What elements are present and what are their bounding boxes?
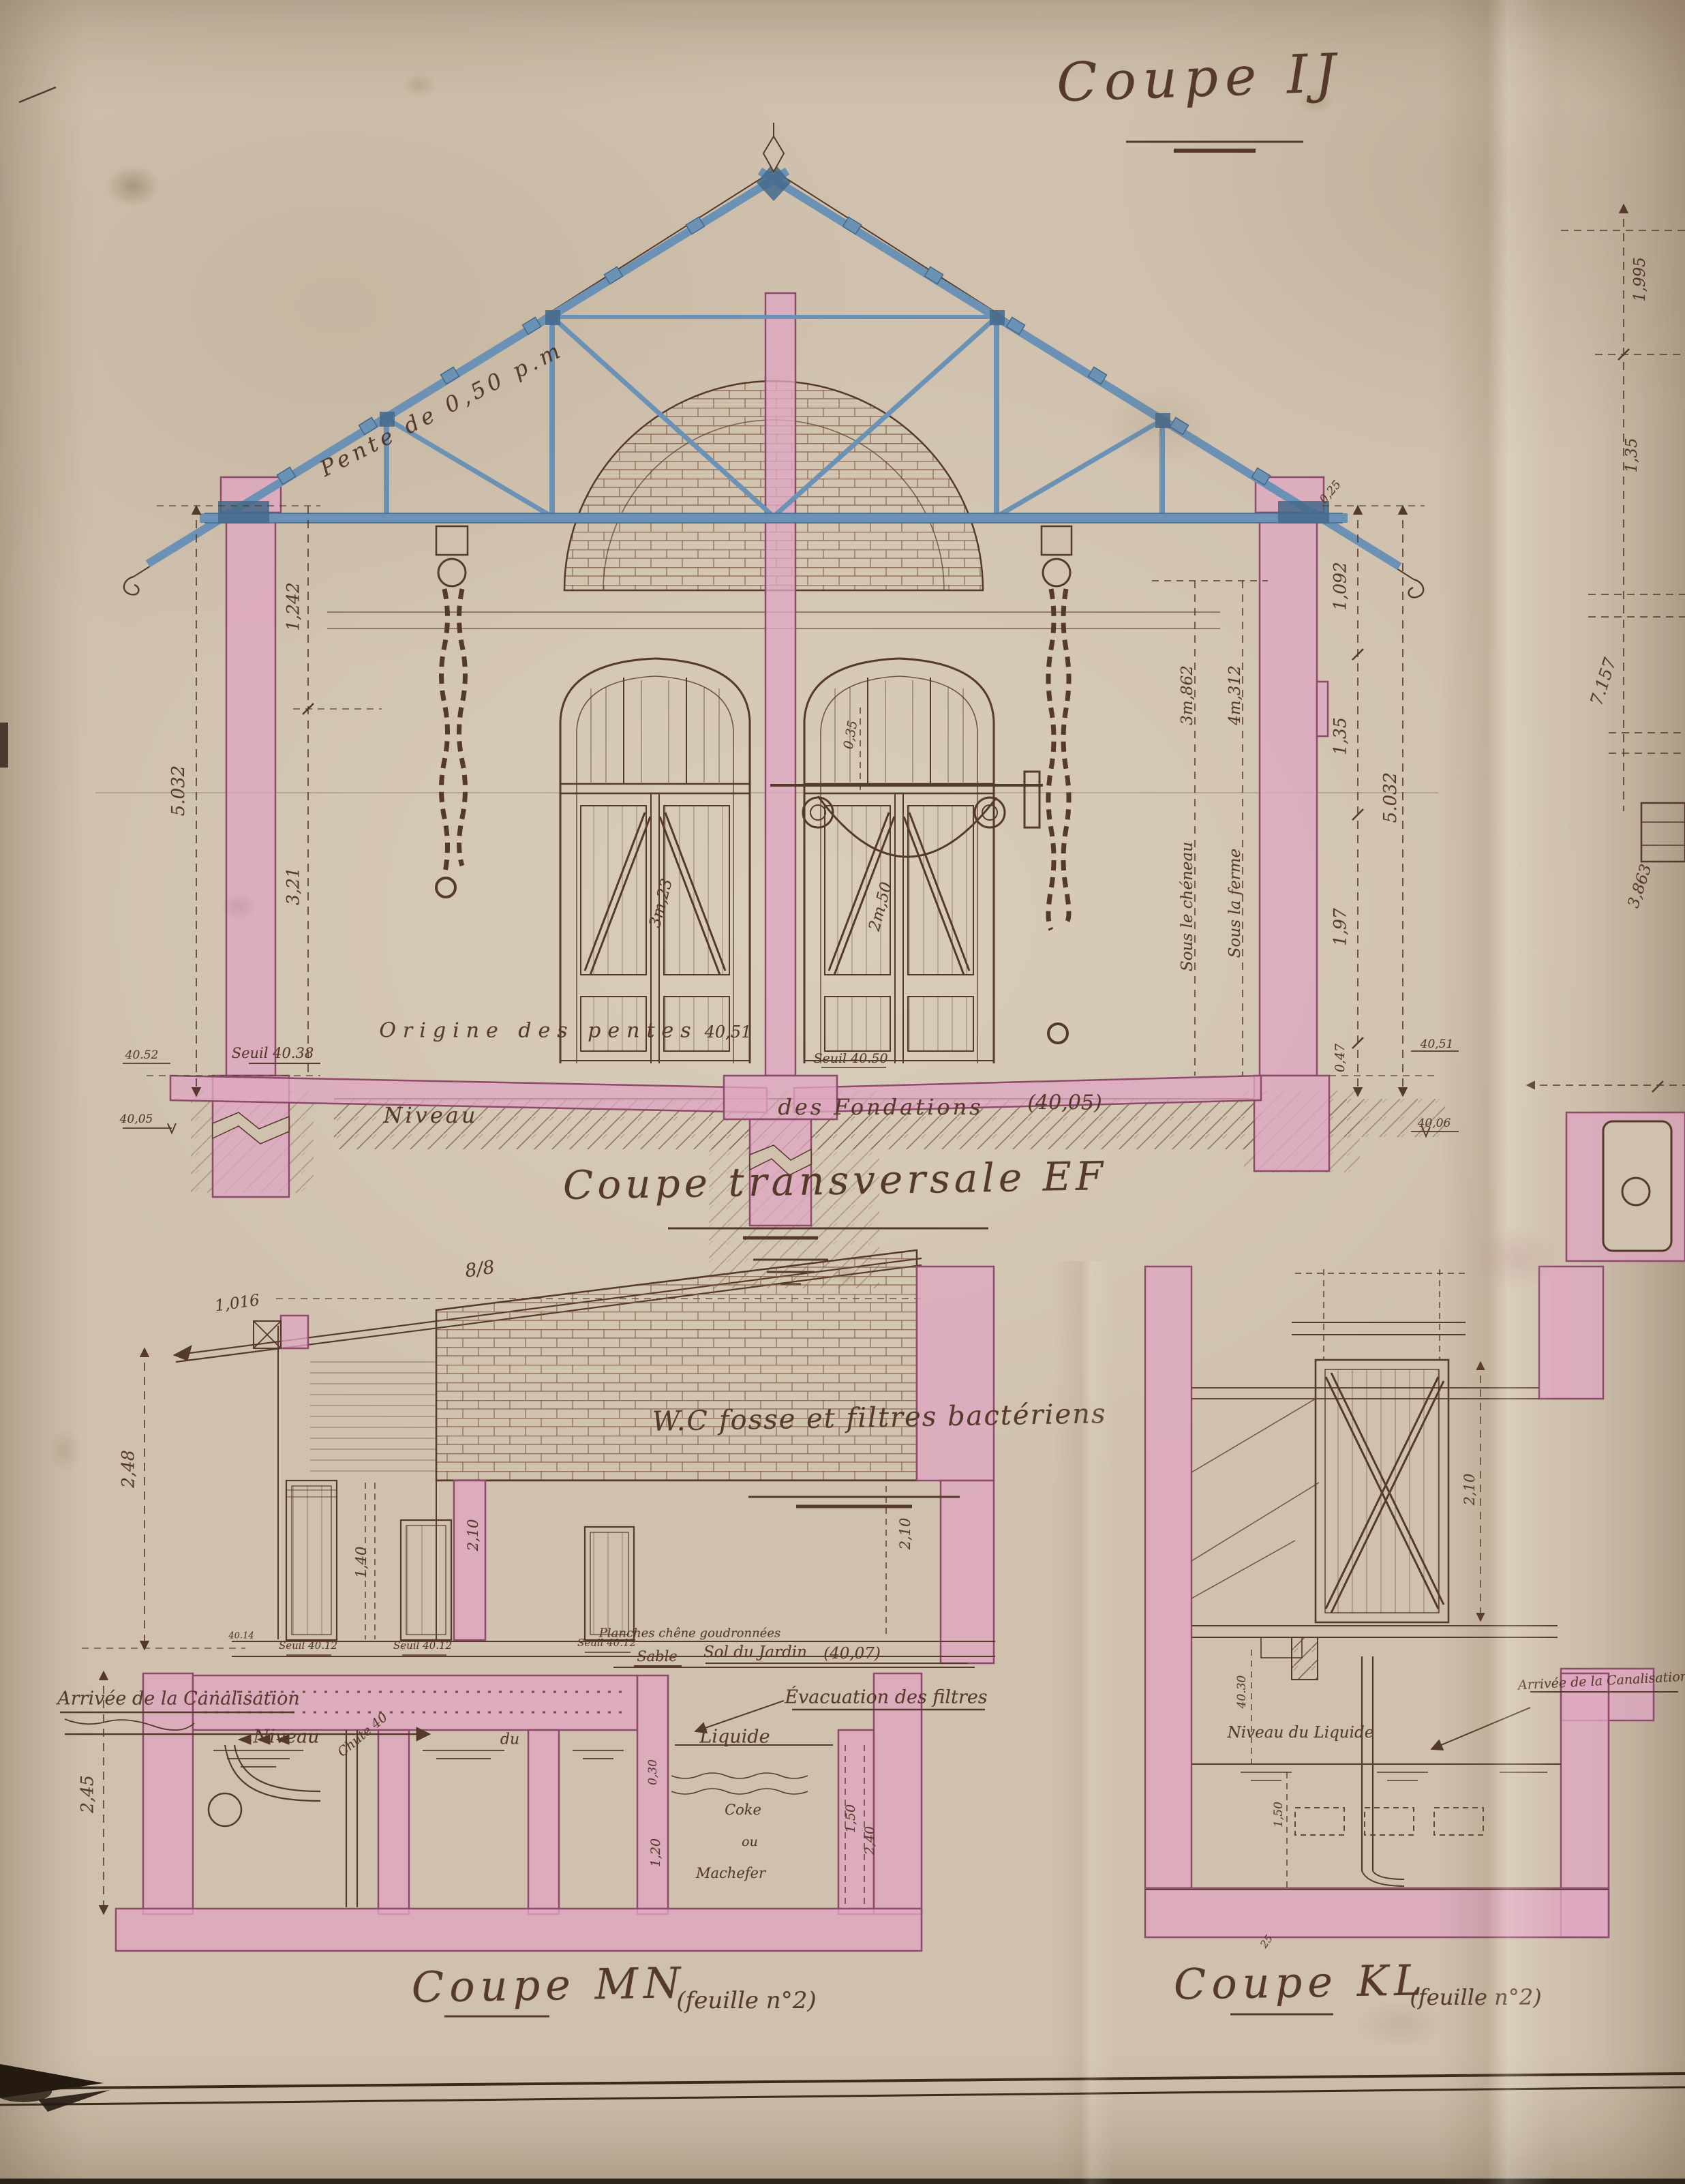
mn-dim-140: 1,40 [353, 1547, 369, 1579]
mn-sol-jardin-cote: (40,07) [823, 1645, 881, 1663]
niveau-fondations-1: Niveau [384, 1102, 479, 1128]
edge-dim-3863: 3,863 [1624, 862, 1655, 911]
drawing-sheet: Coupe IJ Pente de 0,50 p.m Origine des p… [0, 0, 1685, 2184]
roof-slope-note: Pente de 0,50 p.m [316, 336, 568, 481]
mn-cote-4014: 40.14 [228, 1631, 254, 1641]
kl-dim-25: 25 [1258, 1932, 1275, 1950]
door-left-cote: 3m,23 [646, 877, 676, 929]
ef-dim-025: 0,25 [1317, 478, 1344, 506]
ef-dim-321: 3,21 [284, 867, 303, 905]
mn-dim-120: 1,20 [648, 1838, 663, 1867]
ef-section-title: Coupe transversale EF [562, 1153, 1107, 1209]
mn-seuil-2: Seuil 40.12 [393, 1639, 452, 1652]
ef-dim-135: 1,35 [1331, 717, 1350, 755]
mn-cote-1016: 1,016 [214, 1292, 261, 1316]
niveau-fondations-cote: (40,05) [1027, 1091, 1102, 1115]
mn-dim-245: 2,45 [78, 1775, 97, 1813]
mn-seuil-3: Seuil 40.12 [577, 1637, 636, 1649]
edge-dim-1995: 1,995 [1631, 257, 1649, 302]
ef-level-4051: 40,51 [1421, 1037, 1454, 1051]
mn-dim-248: 2,48 [119, 1450, 138, 1488]
mn-niveau-2: du [500, 1731, 519, 1748]
edge-dim-135: 1,35 [1623, 438, 1641, 472]
mn-arrivee-label: Arrivée de la Canalisation [57, 1688, 300, 1710]
mn-dim-150: 1,50 [843, 1804, 858, 1833]
mn-chute-label: Chute 40 [335, 1710, 391, 1759]
origine-pentes-label: Origine des pentes [379, 1019, 697, 1043]
ef-level-4005-left: 40,05 [120, 1112, 153, 1126]
ef-dim-5032-left: 5.032 [168, 765, 189, 816]
sheet-title: Coupe IJ [1056, 43, 1344, 115]
mn-niveau-3: Liquide [699, 1727, 770, 1748]
mn-dim-210b: 2,10 [897, 1518, 913, 1550]
mn-sable-label: Sable [637, 1648, 678, 1665]
mn-seuil-1: Seuil 40.12 [279, 1639, 337, 1652]
sous-ferme-cote: 4m,312 [1226, 665, 1244, 725]
ef-dim-197: 1,97 [1331, 908, 1350, 946]
ef-level-4052: 40.52 [125, 1048, 159, 1062]
mn-coke-3: Machefer [696, 1865, 765, 1881]
ef-dim-047: 0,47 [1333, 1044, 1348, 1072]
mn-dim-240: 2,40 [862, 1826, 877, 1855]
ef-level-4006: 40,06 [1418, 1117, 1451, 1130]
seuil-left-label: Seuil 40.38 [232, 1045, 314, 1061]
origine-pentes-level: 40,51 [705, 1022, 752, 1042]
kl-niveau-liquide: Niveau du Liquide [1228, 1724, 1374, 1742]
seuil-mid-label: Seuil 40.50 [813, 1051, 887, 1066]
kl-dim-210: 2,10 [1461, 1474, 1478, 1506]
ef-dim-5032-right: 5.032 [1380, 772, 1401, 823]
kl-arrivee-label: Arrivée de la Canalisation [1518, 1669, 1685, 1693]
ef-dim-1242: 1,242 [284, 582, 303, 631]
label-layer: Coupe IJ Pente de 0,50 p.m Origine des p… [0, 0, 1685, 2184]
mn-sol-jardin-label: Sol du Jardin [703, 1643, 807, 1661]
mn-dim-030: 0,30 [646, 1759, 660, 1785]
imposte-cote: 0,35 [840, 719, 860, 750]
mn-section-title: Coupe MN [411, 1958, 686, 2012]
wc-note: W.C fosse et filtres bactériens [652, 1398, 1107, 1438]
kl-dim-4030: 40.30 [1235, 1675, 1249, 1709]
ef-dim-1092: 1,092 [1331, 562, 1350, 611]
mn-pente-ratio: 8/8 [464, 1257, 496, 1282]
mn-coke-2: ou [742, 1834, 758, 1849]
mn-niveau-1: Niveau [254, 1727, 320, 1748]
mn-feuille-note: (feuille n°2) [676, 1987, 816, 2014]
mn-evacuation-label: Évacuation des filtres [785, 1687, 987, 1708]
kl-section-title: Coupe KL [1173, 1955, 1427, 2009]
door-right-cote: 2m,50 [866, 880, 896, 932]
mn-coke-1: Coke [725, 1802, 761, 1818]
sous-cheneau-label: Sous le chéneau [1179, 842, 1196, 971]
mn-dim-210a: 2,10 [465, 1519, 481, 1551]
sous-cheneau-cote: 3m,862 [1179, 665, 1196, 725]
niveau-fondations-2: des Fondations [778, 1094, 983, 1120]
kl-dim-150: 1,50 [1272, 1802, 1286, 1827]
sous-ferme-label: Sous la ferme [1226, 849, 1244, 958]
edge-dim-7157: 7.157 [1586, 655, 1620, 708]
kl-feuille-note: (feuille n°2) [1410, 1984, 1541, 2010]
